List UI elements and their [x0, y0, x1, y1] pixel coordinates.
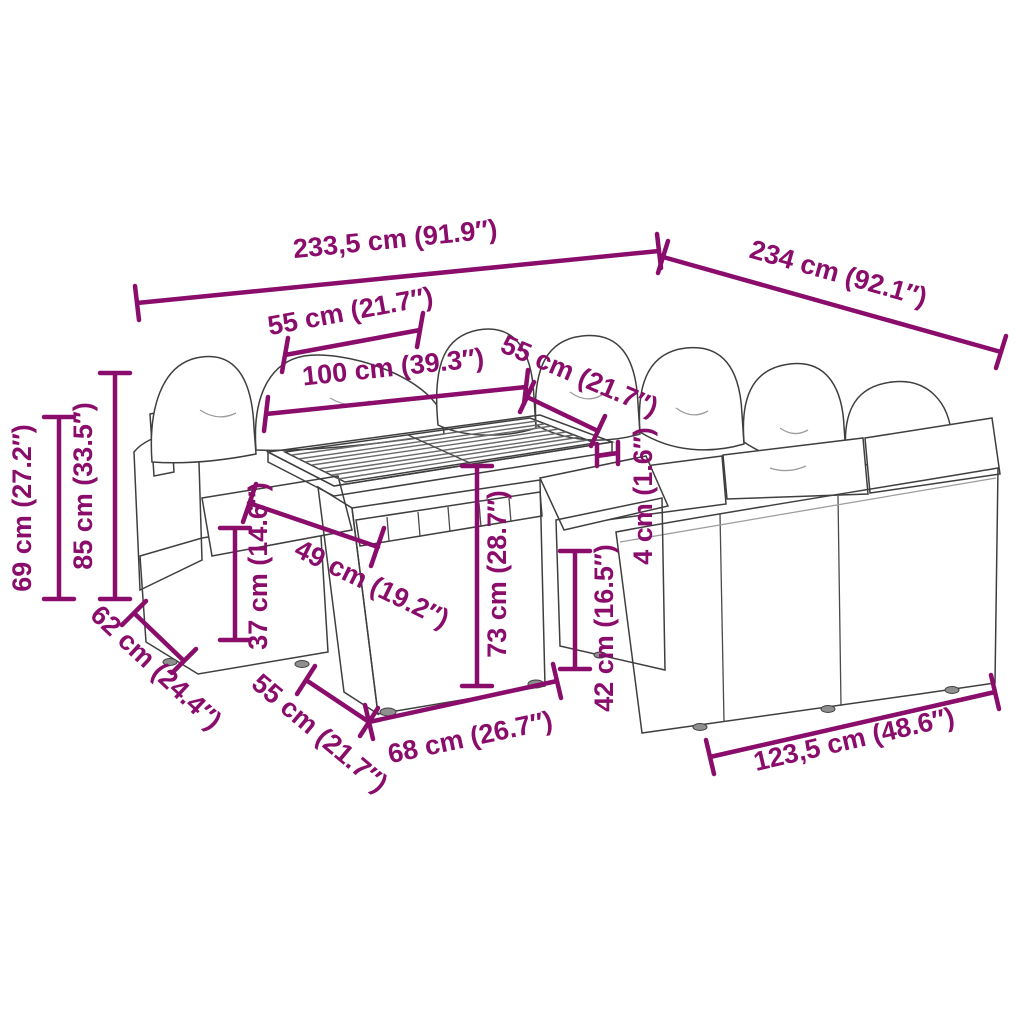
sofa-foot [295, 661, 309, 668]
dim-label-total-width-back: 233,5 cm (91.9″) [292, 214, 499, 264]
dim-label-base-height: 42 cm (16.5″) [589, 544, 619, 712]
dim-base-height: 42 cm (16.5″) [560, 544, 619, 712]
dim-label-total-height: 85 cm (33.5″) [68, 402, 98, 570]
dim-label-total-width-right: 234 cm (92.1″) [747, 234, 931, 312]
dim-total-height: 85 cm (33.5″) [68, 373, 130, 599]
panel-seam [720, 514, 724, 722]
dim-total-width-right: 234 cm (92.1″) [658, 234, 1006, 368]
dim-label-seat-depth: 62 cm (24.4″) [85, 599, 228, 735]
left-back-cushion-1 [151, 356, 256, 462]
right-seat-cushion [723, 438, 868, 499]
panel-seam [838, 496, 841, 706]
dimension-annotations: 233,5 cm (91.9″) 234 cm (92.1″) 55 cm (2… [7, 214, 1006, 799]
dim-label-table-top-depth: 49 cm (19.2″) [290, 534, 454, 634]
product-dimension-diagram: 233,5 cm (91.9″) 234 cm (92.1″) 55 cm (2… [0, 0, 1024, 1024]
left-seat-cushion [202, 476, 352, 556]
dim-armrest-height: 69 cm (27.2″) [7, 417, 74, 599]
dim-label-armrest-height: 69 cm (27.2″) [7, 424, 37, 592]
sofa-foot [821, 706, 835, 713]
dim-table-height: 73 cm (28.7″) [462, 466, 512, 686]
dim-table-base-length: 68 cm (26.7″) [365, 664, 561, 769]
sofa-foot [945, 687, 959, 694]
dim-seat-depth: 62 cm (24.4″) [85, 599, 228, 735]
right-sofa [600, 418, 1000, 733]
sofa-foot [693, 724, 707, 731]
diagram-canvas: 233,5 cm (91.9″) 234 cm (92.1″) 55 cm (2… [0, 0, 1024, 1024]
dim-label-tabletop-thickness: 4 cm (1.6″) [628, 427, 658, 565]
dim-label-table-height: 73 cm (28.7″) [482, 490, 512, 658]
